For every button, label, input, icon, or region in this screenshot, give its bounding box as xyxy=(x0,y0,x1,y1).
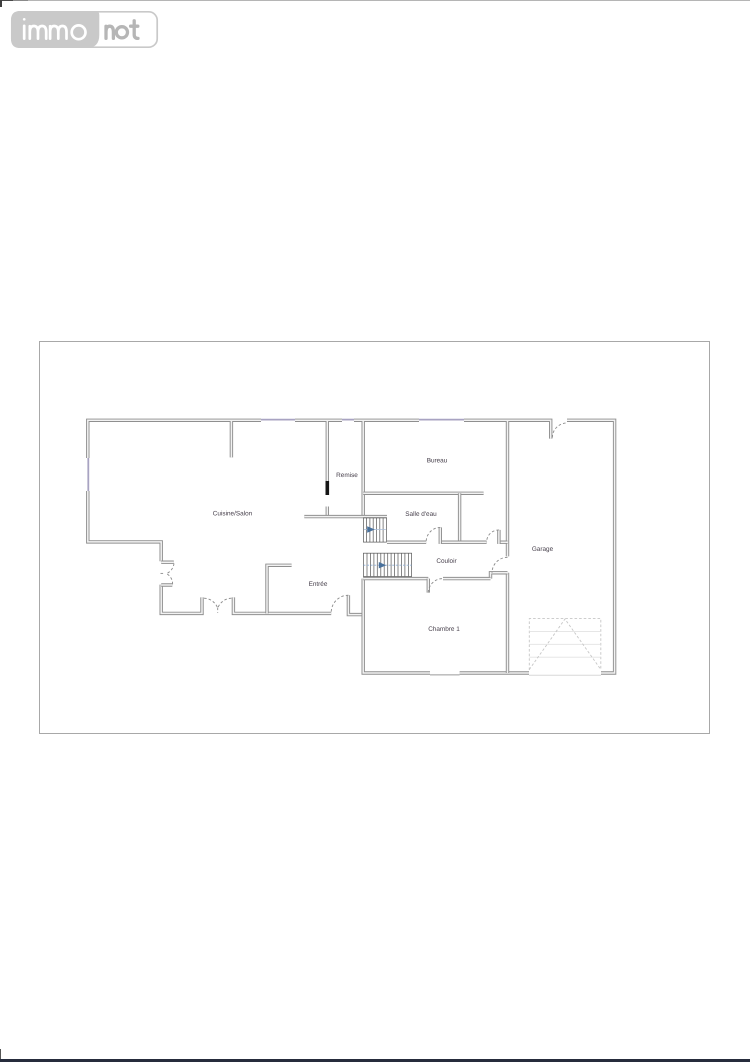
svg-text:Remise: Remise xyxy=(336,472,358,479)
svg-text:Entrée: Entrée xyxy=(309,581,328,588)
svg-text:Bureau: Bureau xyxy=(427,457,448,464)
svg-text:Chambre 1: Chambre 1 xyxy=(428,626,460,633)
svg-text:Garage: Garage xyxy=(532,546,554,553)
svg-text:Salle d'eau: Salle d'eau xyxy=(405,511,437,518)
svg-text:Couloir: Couloir xyxy=(436,558,457,565)
svg-text:Cuisine/Salon: Cuisine/Salon xyxy=(213,510,253,517)
